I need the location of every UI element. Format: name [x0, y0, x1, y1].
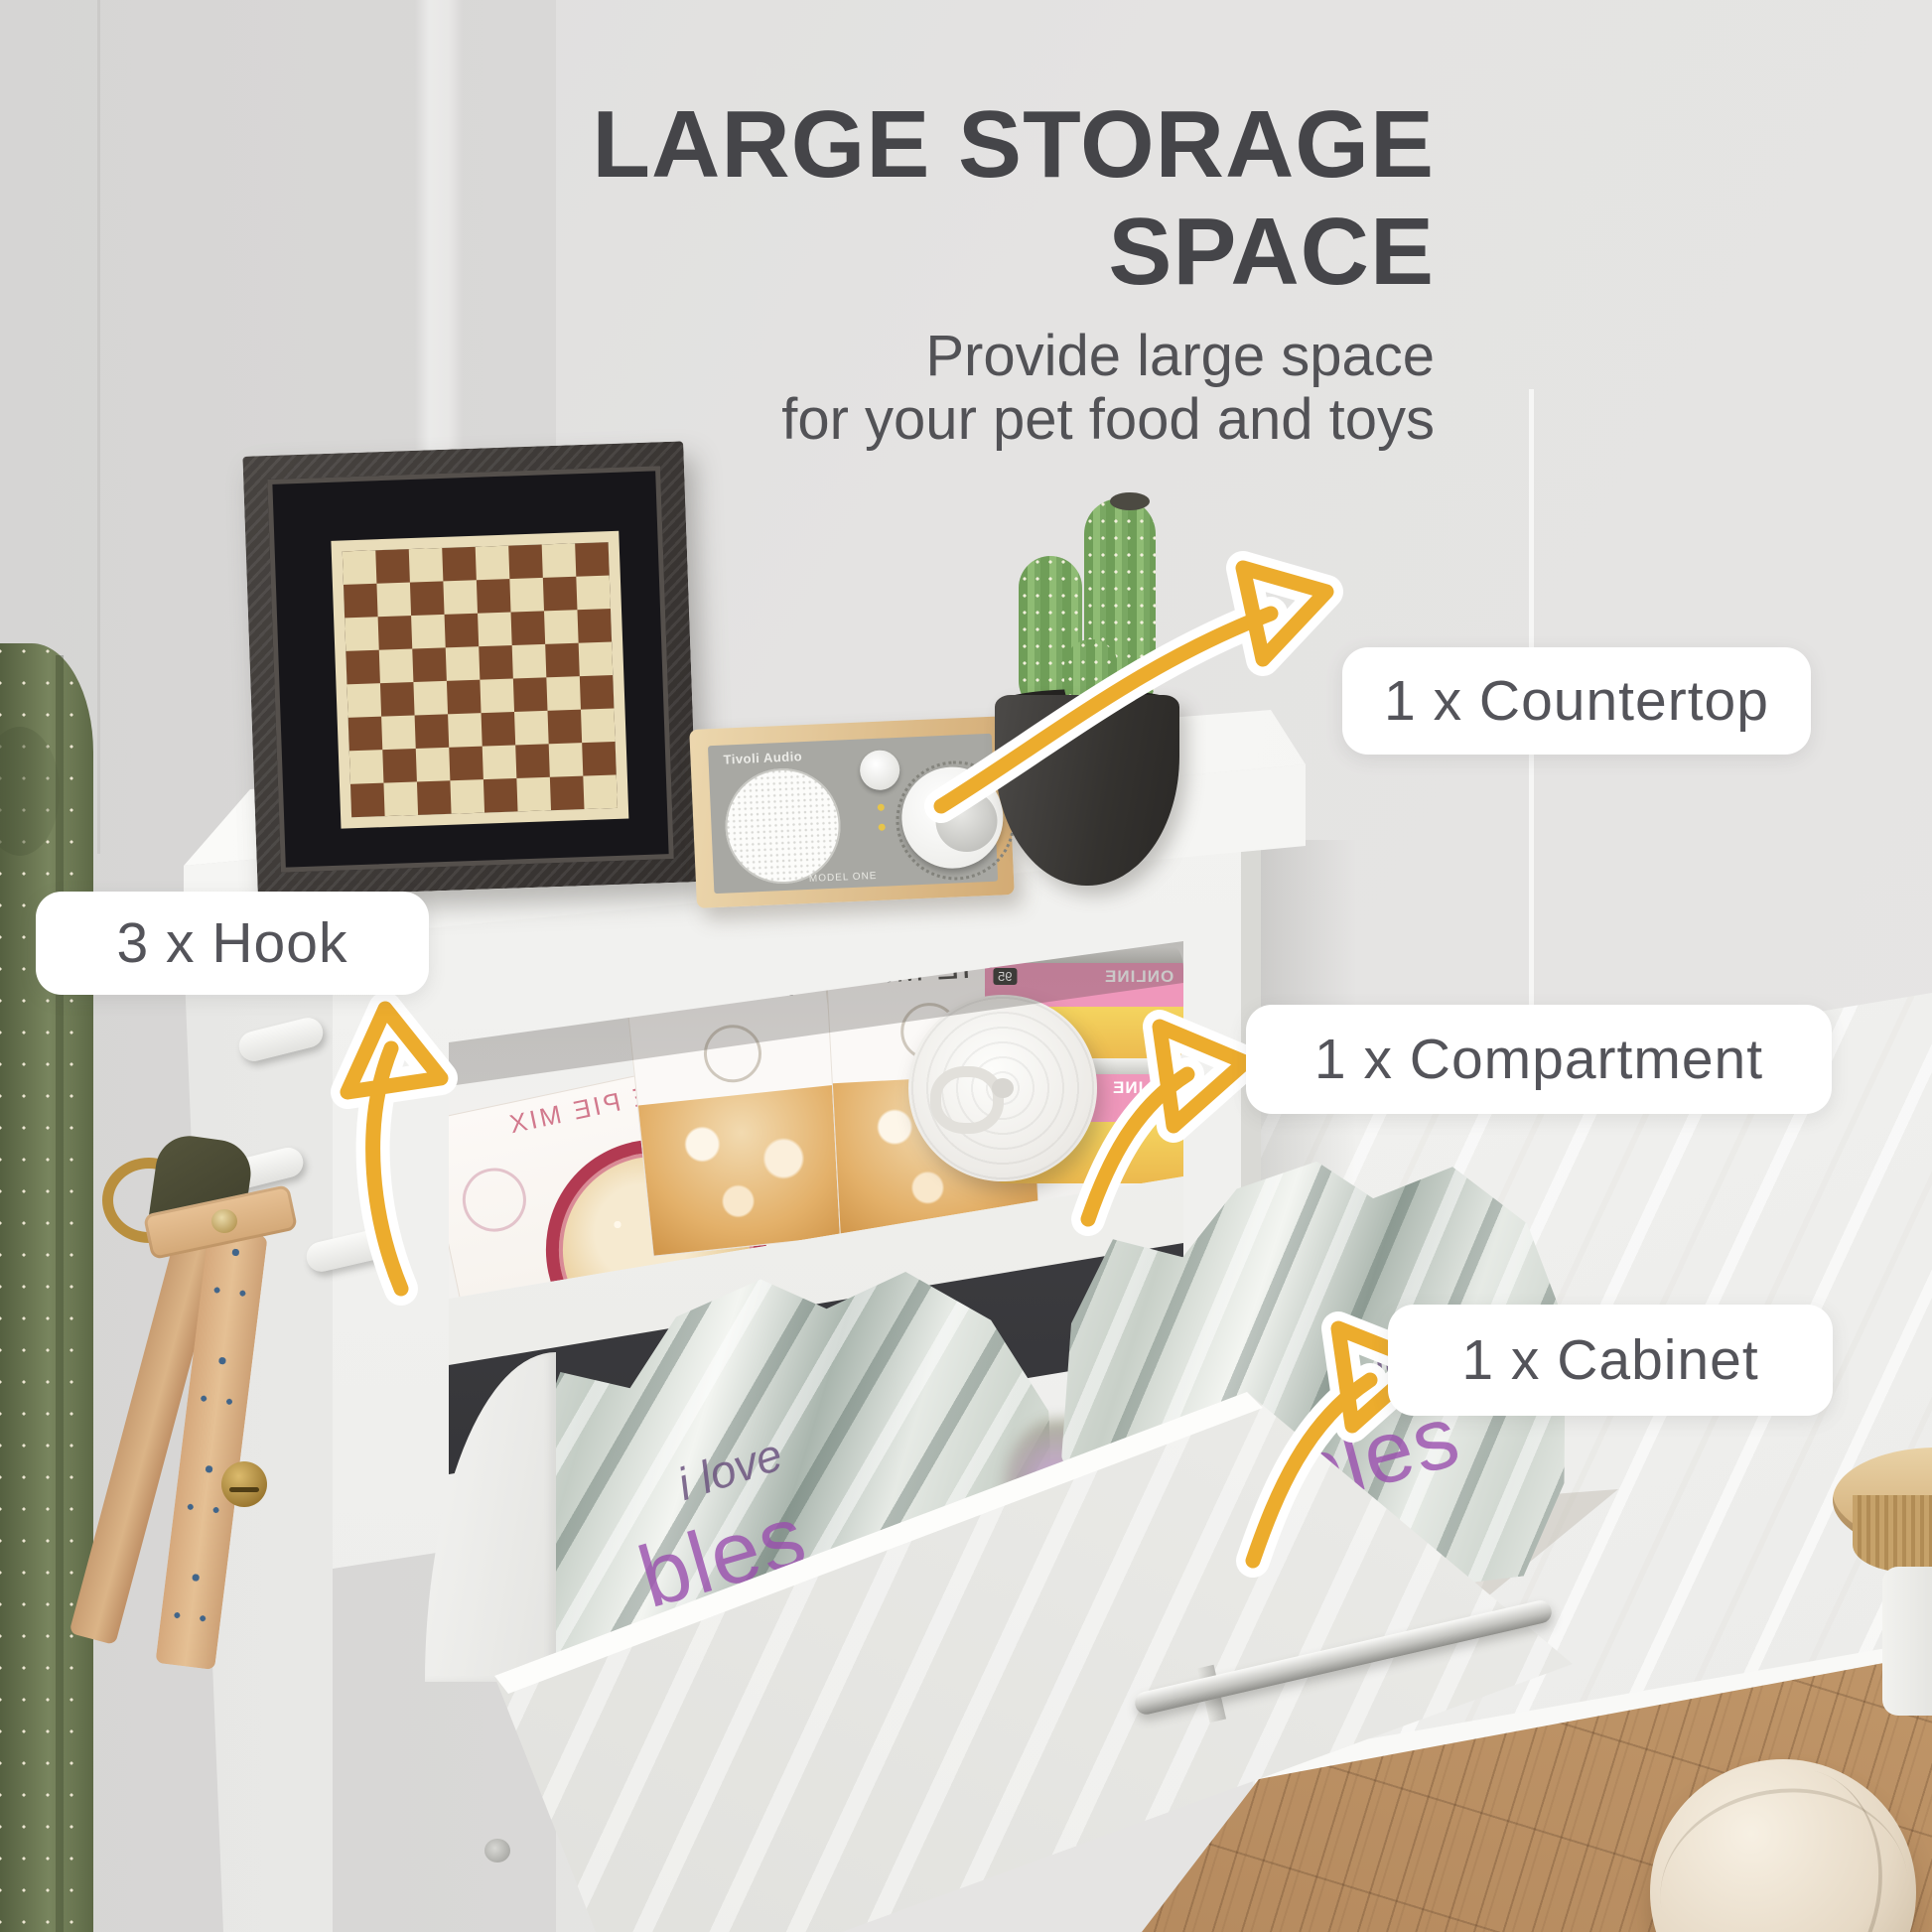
- callout-hook: 3 x Hook: [36, 892, 429, 995]
- curved-arrow-icon-compartment: [1088, 1027, 1245, 1219]
- curved-arrow-icon-countertop: [941, 568, 1326, 806]
- callout-countertop: 1 x Countertop: [1342, 647, 1811, 755]
- callout-cabinet: 1 x Cabinet: [1388, 1305, 1833, 1416]
- curved-arrow-icon-hook: [347, 1009, 441, 1289]
- product-infographic: APPLE PIE MIX NET WT 12.4 OZ (352g) PIE …: [0, 0, 1932, 1932]
- callout-compartment: 1 x Compartment: [1246, 1005, 1832, 1114]
